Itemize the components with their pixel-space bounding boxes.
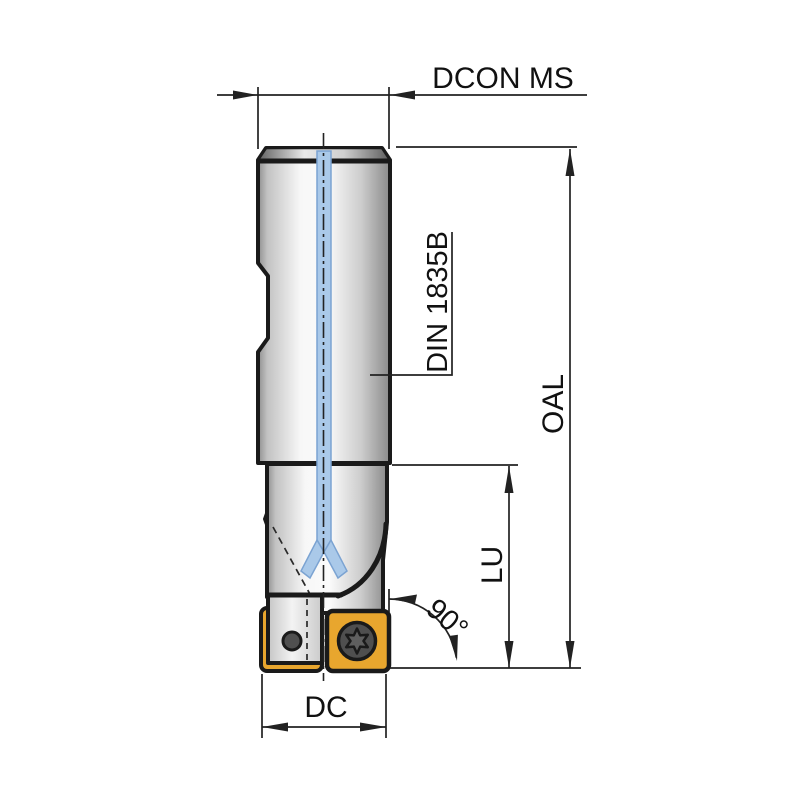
oal-label: OAL [537,374,570,434]
dc-label: DC [304,691,347,724]
lu-arrow-bottom [505,641,514,668]
diagram-stage: DCON MS DIN 1835B OAL LU [0,0,800,800]
dimension-dcon: DCON MS [217,62,587,149]
dcon-arrow-left [233,91,258,100]
din-label: DIN 1835B [422,231,454,373]
angle-label: 90° [420,593,474,646]
tool-body [258,133,390,681]
dc-arrow-left [262,723,288,732]
oal-arrow-top [566,149,575,176]
lu-arrow-top [505,466,514,493]
dc-arrow-right [360,723,386,732]
tool-diagram: DCON MS DIN 1835B OAL LU [0,0,800,800]
lu-label: LU [476,546,509,584]
head-front-face [268,595,322,663]
dimension-dc: DC [262,674,386,738]
dcon-arrow-right [390,91,415,100]
dimension-angle: 90° [389,589,474,661]
oal-arrow-bottom [566,641,575,668]
angle-arrow-top [390,595,417,604]
insert-screw-hole [283,632,301,650]
dcon-label: DCON MS [432,62,574,95]
dimension-oal: OAL [396,147,577,668]
